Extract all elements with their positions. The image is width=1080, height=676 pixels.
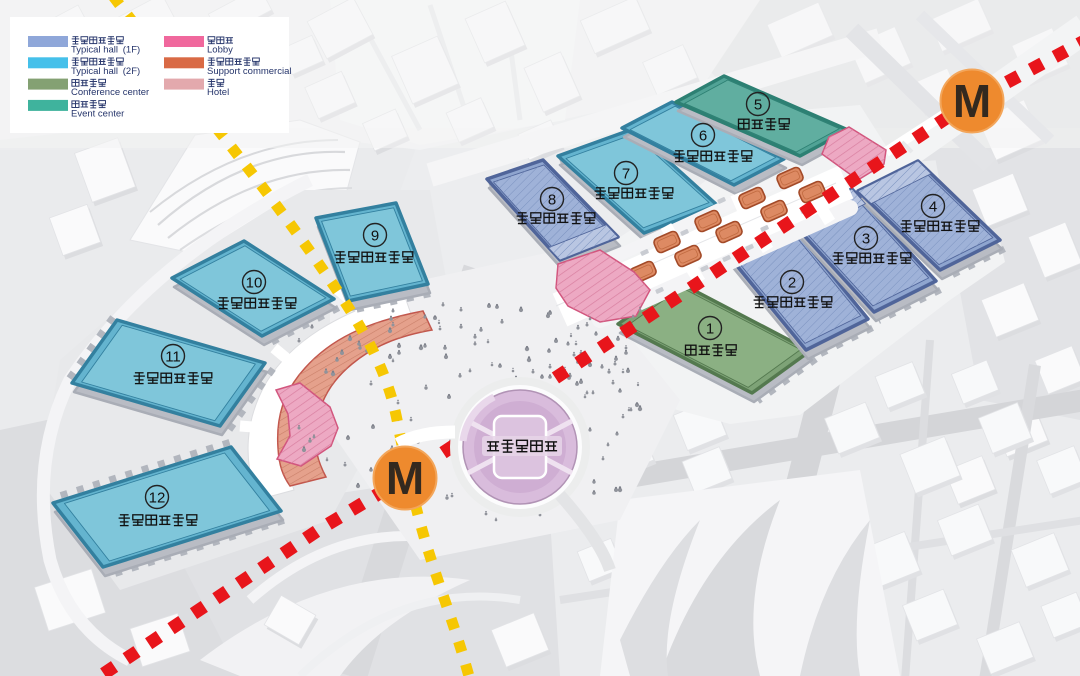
svg-text:Hotel: Hotel: [207, 87, 229, 98]
svg-text:4: 4: [929, 198, 937, 215]
svg-text:1: 1: [706, 320, 714, 337]
svg-text:Event center: Event center: [71, 108, 124, 119]
svg-text:M: M: [386, 452, 424, 504]
svg-text:7: 7: [622, 165, 630, 182]
svg-text:9: 9: [371, 227, 379, 244]
svg-text:3: 3: [862, 230, 870, 247]
svg-text:Typical hall (2F): Typical hall (2F): [71, 66, 140, 77]
svg-text:M: M: [953, 75, 991, 127]
svg-text:11: 11: [165, 348, 181, 365]
svg-text:Typical hall (1F): Typical hall (1F): [71, 45, 140, 56]
svg-text:5: 5: [754, 96, 762, 113]
svg-text:6: 6: [699, 127, 707, 144]
svg-text:Conference center: Conference center: [71, 87, 149, 98]
svg-text:2: 2: [788, 274, 796, 291]
svg-text:10: 10: [246, 274, 263, 291]
svg-text:8: 8: [548, 191, 556, 208]
svg-text:Lobby: Lobby: [207, 45, 233, 56]
svg-text:Support commercial: Support commercial: [207, 66, 291, 77]
svg-text:12: 12: [149, 489, 166, 506]
